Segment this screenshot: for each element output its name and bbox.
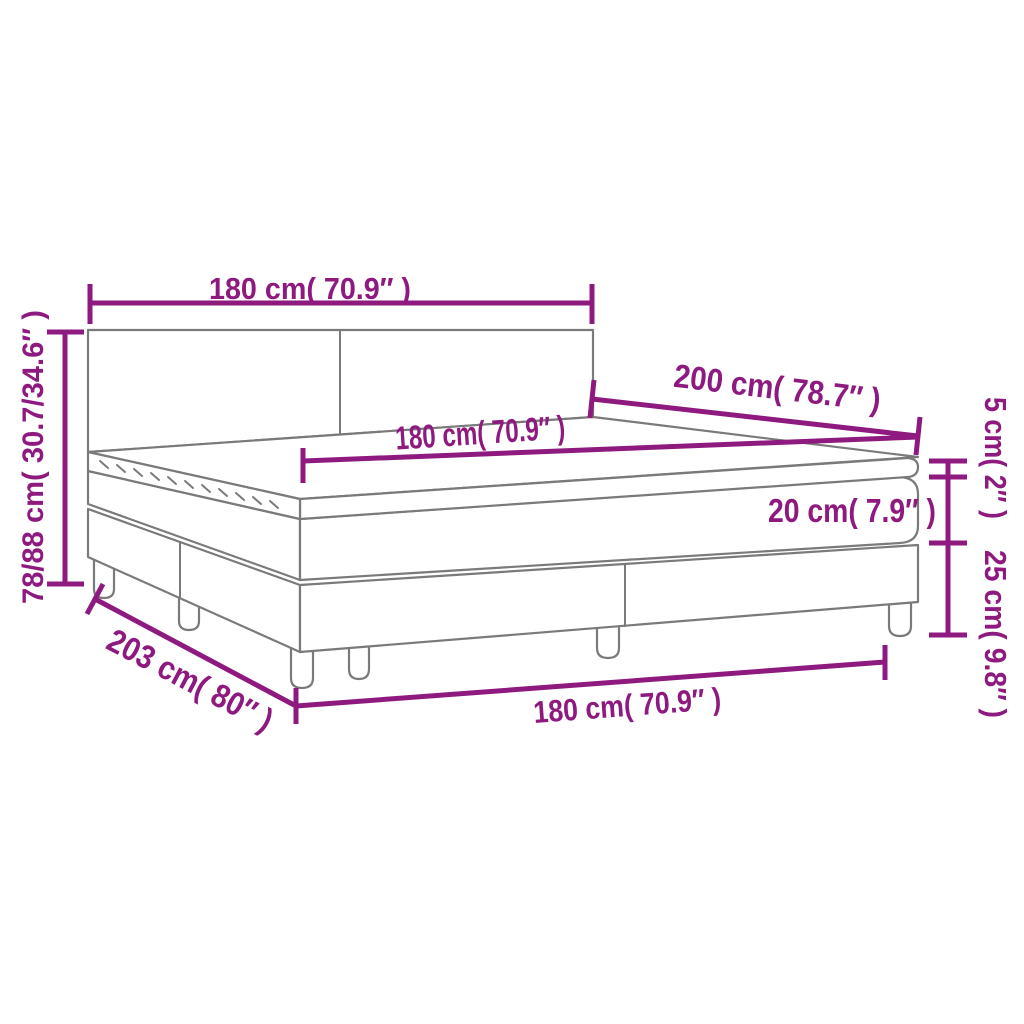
label-base-height: 25 cm( 9.8″ ) bbox=[978, 550, 1013, 718]
bed-dimension-diagram: 180 cm( 70.9″ ) 78/88 cm( 30.7/34.6″ ) 2… bbox=[0, 0, 1024, 1024]
dimension-bottom-width: 180 cm( 70.9″ ) bbox=[296, 645, 885, 730]
label-top-width: 180 cm( 70.9″ ) bbox=[209, 271, 411, 306]
label-length: 200 cm( 78.7″ ) bbox=[672, 357, 883, 418]
label-topper-height: 5 cm( 2″ ) bbox=[978, 397, 1013, 519]
label-mattress-height: 20 cm( 7.9″ ) bbox=[768, 492, 936, 529]
label-overall-height: 78/88 cm( 30.7/34.6″ ) bbox=[17, 310, 50, 604]
label-total-length: 203 cm( 80″ ) bbox=[101, 621, 279, 738]
dimension-overall-height: 78/88 cm( 30.7/34.6″ ) bbox=[17, 310, 84, 604]
diagram-canvas: 180 cm( 70.9″ ) 78/88 cm( 30.7/34.6″ ) 2… bbox=[0, 0, 1024, 1024]
dimension-top-width: 180 cm( 70.9″ ) bbox=[90, 271, 592, 324]
